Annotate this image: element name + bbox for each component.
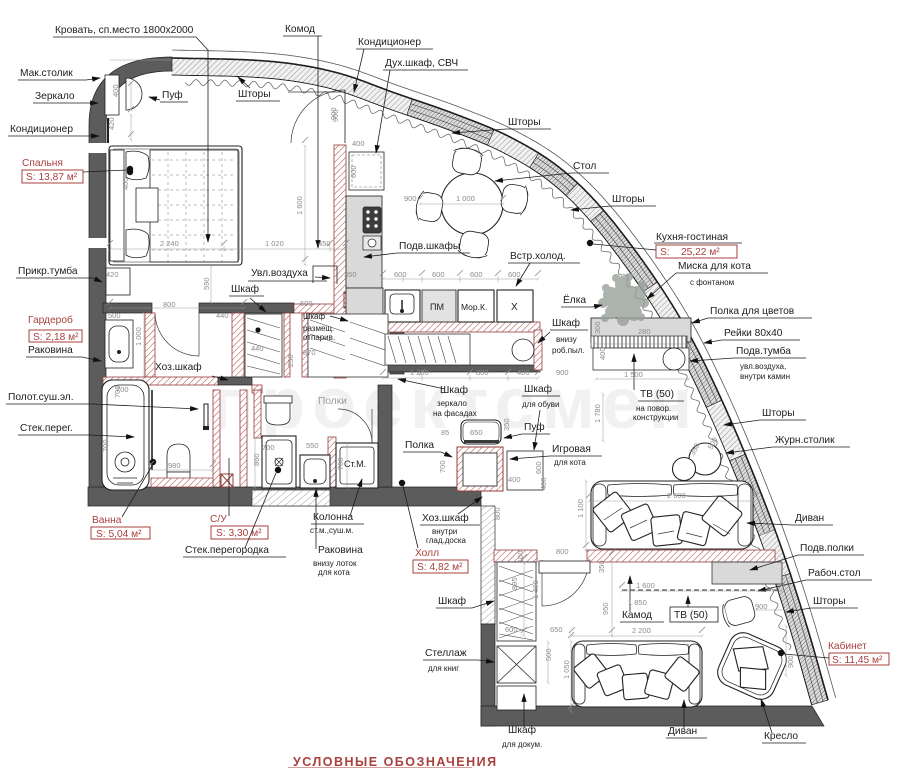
svg-text:85: 85 [441, 428, 449, 437]
svg-text:350: 350 [344, 270, 357, 279]
svg-text:внутри: внутри [432, 527, 457, 536]
svg-text:ст.м.,суш.м.: ст.м.,суш.м. [310, 526, 353, 535]
svg-text:Рабоч.стол: Рабоч.стол [808, 567, 861, 579]
svg-text:Шкаф: Шкаф [438, 595, 466, 607]
svg-text:900: 900 [786, 655, 795, 668]
svg-text:800: 800 [493, 507, 502, 520]
svg-text:1 780: 1 780 [593, 404, 602, 423]
svg-text:Ёлка: Ёлка [563, 294, 586, 306]
svg-text:870: 870 [303, 348, 316, 357]
svg-text:Шкаф: Шкаф [552, 317, 580, 329]
svg-text:ТВ (50): ТВ (50) [640, 389, 674, 400]
svg-text:700: 700 [101, 439, 110, 452]
svg-text:Рейки 80х40: Рейки 80х40 [724, 328, 783, 339]
svg-text:S: 4,82 м²: S: 4,82 м² [417, 562, 463, 573]
svg-text:800: 800 [556, 547, 569, 556]
svg-text:900: 900 [755, 602, 768, 611]
svg-text:600: 600 [508, 270, 521, 279]
svg-text:100: 100 [516, 550, 525, 563]
svg-text:700: 700 [262, 443, 275, 452]
svg-text:1 500: 1 500 [624, 370, 643, 379]
svg-text:Колонна: Колонна [313, 512, 353, 523]
svg-text:550: 550 [306, 441, 319, 450]
svg-text:S: 5,04 м²: S: 5,04 м² [96, 529, 142, 540]
svg-text:600: 600 [349, 165, 358, 178]
svg-text:Хоз.шкаф: Хоз.шкаф [422, 512, 469, 524]
svg-text:Пуф: Пуф [162, 89, 183, 101]
svg-text:450: 450 [318, 239, 331, 248]
svg-text:600: 600 [394, 270, 407, 279]
svg-text:400: 400 [598, 347, 607, 360]
svg-text:ТВ (50): ТВ (50) [674, 610, 708, 621]
svg-text:Шкаф: Шкаф [524, 383, 552, 395]
svg-text:1 000: 1 000 [456, 194, 475, 203]
svg-text:Мор.К.: Мор.К. [461, 302, 487, 312]
svg-text:900: 900 [556, 368, 569, 377]
svg-text:895: 895 [510, 577, 519, 590]
svg-text:350: 350 [597, 560, 606, 573]
svg-text:980: 980 [168, 461, 181, 470]
svg-text:Кухня-гостиная: Кухня-гостиная [656, 232, 728, 243]
svg-text:700: 700 [438, 460, 447, 473]
svg-text:Прикр.тумба: Прикр.тумба [18, 265, 78, 277]
svg-text:600: 600 [534, 461, 543, 474]
svg-text:2 600: 2 600 [667, 491, 686, 500]
svg-text:Пуф: Пуф [524, 421, 545, 433]
svg-text:900: 900 [404, 194, 417, 203]
svg-text:Диван: Диван [795, 513, 824, 524]
svg-text:S: 11,45 м²: S: 11,45 м² [832, 655, 883, 666]
svg-text:400: 400 [508, 475, 521, 484]
svg-text:для обуви: для обуви [522, 400, 559, 409]
svg-text:S: 3,30 м²: S: 3,30 м² [216, 528, 262, 539]
svg-text:S: 13,87 м²: S: 13,87 м² [26, 172, 78, 183]
svg-text:600: 600 [300, 299, 313, 308]
svg-text:Подв.полки: Подв.полки [800, 543, 854, 554]
svg-text:350: 350 [502, 418, 511, 431]
svg-text:С/У: С/У [210, 514, 227, 525]
svg-text:Шторы: Шторы [612, 194, 645, 205]
svg-text:400: 400 [517, 368, 530, 377]
svg-text:Полот.суш.эл.: Полот.суш.эл. [8, 392, 74, 403]
svg-text:Стеллаж: Стеллаж [425, 648, 467, 659]
svg-text:1 600: 1 600 [636, 581, 655, 590]
svg-text:для кота: для кота [318, 568, 350, 577]
svg-text:2 240: 2 240 [160, 239, 179, 248]
svg-text:на фасадах: на фасадах [433, 409, 477, 418]
svg-text:2 200: 2 200 [632, 626, 651, 635]
svg-text:400: 400 [539, 477, 548, 490]
svg-text:ПМ: ПМ [430, 302, 444, 312]
svg-text:900: 900 [329, 107, 338, 120]
svg-text:отпарив.: отпарив. [303, 333, 335, 342]
svg-text:Комод: Комод [285, 24, 315, 35]
svg-text:конструкции: конструкции [633, 413, 679, 422]
svg-text:Холл: Холл [415, 548, 439, 559]
svg-text:Камод: Камод [622, 610, 652, 621]
svg-text:увл.воздуха,: увл.воздуха, [740, 362, 786, 371]
svg-text:на повор.: на повор. [636, 404, 671, 413]
svg-text:Подв.шкафы: Подв.шкафы [399, 240, 460, 252]
svg-text:Кабинет: Кабинет [828, 640, 867, 652]
svg-text:500: 500 [544, 648, 553, 661]
svg-text:Стек.перег.: Стек.перег. [20, 423, 73, 434]
svg-text:Раковина: Раковина [318, 545, 363, 556]
svg-text:700: 700 [116, 385, 129, 394]
svg-text:Полки: Полки [318, 396, 347, 407]
svg-text:600: 600 [505, 625, 518, 634]
svg-text:300: 300 [593, 321, 602, 334]
svg-text:Кондиционер: Кондиционер [10, 124, 73, 135]
svg-text:860: 860 [252, 453, 261, 466]
svg-text:Гардероб: Гардероб [28, 314, 73, 326]
svg-text:280: 280 [638, 327, 651, 336]
svg-text:420: 420 [107, 117, 116, 130]
svg-text:Шкаф: Шкаф [303, 312, 325, 321]
svg-text:Раковина: Раковина [28, 345, 73, 356]
svg-text:Кресло: Кресло [764, 731, 798, 742]
svg-text:1 050: 1 050 [562, 660, 571, 679]
svg-text:Кровать, сп.место 1800х2000: Кровать, сп.место 1800х2000 [55, 25, 194, 36]
svg-text:внутри камин: внутри камин [740, 372, 790, 381]
svg-text:Шторы: Шторы [813, 596, 846, 607]
svg-text:глад.доска: глад.доска [426, 536, 467, 545]
svg-text:440: 440 [251, 344, 264, 353]
svg-text:Зеркало: Зеркало [35, 91, 75, 102]
svg-text:внизу: внизу [556, 335, 577, 344]
svg-text:Шторы: Шторы [238, 89, 271, 100]
svg-text:Стол: Стол [573, 161, 596, 172]
svg-text:1 000: 1 000 [134, 327, 143, 346]
svg-text:размещ.: размещ. [303, 324, 334, 333]
svg-text:1 200: 1 200 [410, 368, 429, 377]
svg-text:700: 700 [336, 457, 345, 470]
svg-text:УСЛОВНЫЕ ОБОЗНАЧЕНИЯ: УСЛОВНЫЕ ОБОЗНАЧЕНИЯ [293, 755, 498, 768]
svg-text:Кондиционер: Кондиционер [358, 37, 421, 48]
svg-text:Дух.шкаф, СВЧ: Дух.шкаф, СВЧ [385, 57, 458, 69]
svg-text:1 400: 1 400 [531, 580, 540, 599]
svg-text:Полка для цветов: Полка для цветов [710, 306, 794, 317]
svg-text:Мак.столик: Мак.столик [20, 68, 73, 79]
svg-text:1 020: 1 020 [265, 239, 284, 248]
svg-text:Х: Х [511, 302, 518, 313]
svg-text:400: 400 [121, 177, 130, 190]
svg-text:Полка: Полка [405, 440, 434, 451]
svg-text:250: 250 [286, 354, 295, 367]
svg-text:500: 500 [108, 311, 121, 320]
svg-text:600: 600 [470, 270, 483, 279]
svg-text:зеркало: зеркало [437, 399, 467, 408]
svg-text:Шкаф: Шкаф [508, 724, 536, 736]
svg-text:с фонтаном: с фонтаном [690, 278, 734, 287]
svg-text:Спальня: Спальня [22, 158, 63, 169]
svg-text:Хоз.шкаф: Хоз.шкаф [155, 361, 202, 373]
svg-text:800: 800 [476, 368, 489, 377]
svg-text:Шторы: Шторы [762, 408, 795, 419]
svg-text:внизу лоток: внизу лоток [313, 559, 357, 568]
svg-text:S: 2,18 м²: S: 2,18 м² [33, 332, 79, 343]
svg-text:590: 590 [202, 277, 211, 290]
svg-text:1 600: 1 600 [295, 196, 304, 215]
svg-text:800: 800 [163, 300, 176, 309]
svg-text:Миска для кота: Миска для кота [678, 261, 751, 272]
svg-text:Увл.воздуха: Увл.воздуха [251, 268, 308, 279]
svg-text:440: 440 [216, 311, 229, 320]
svg-text:420: 420 [106, 270, 119, 279]
svg-text:950: 950 [601, 602, 610, 615]
svg-text:400: 400 [111, 84, 120, 97]
svg-text:S: 25,22 м²: S: 25,22 м² [660, 247, 720, 258]
svg-text:Подв.тумба: Подв.тумба [736, 345, 791, 357]
svg-text:для книг: для книг [428, 664, 459, 673]
svg-text:Ванна: Ванна [92, 515, 122, 526]
svg-text:1 850: 1 850 [628, 598, 647, 607]
svg-text:400: 400 [352, 139, 365, 148]
svg-text:Стек.перегородка: Стек.перегородка [185, 545, 269, 556]
svg-text:Журн.столик: Журн.столик [775, 435, 835, 446]
svg-text:для докум.: для докум. [502, 740, 542, 749]
svg-text:Ст.М.: Ст.М. [344, 459, 366, 469]
svg-text:роб.пыл.: роб.пыл. [552, 346, 585, 355]
svg-text:для кота: для кота [554, 458, 586, 467]
svg-text:Шторы: Шторы [508, 117, 541, 128]
svg-text:Шкаф: Шкаф [231, 283, 259, 295]
svg-text:600: 600 [432, 270, 445, 279]
svg-text:Диван: Диван [668, 726, 697, 737]
svg-text:1 100: 1 100 [576, 499, 585, 518]
svg-text:Встр.холод.: Встр.холод. [510, 251, 566, 262]
svg-text:Шкаф: Шкаф [440, 384, 468, 396]
svg-text:650: 650 [550, 625, 563, 634]
svg-text:Игровая: Игровая [552, 444, 591, 455]
svg-text:650: 650 [470, 428, 483, 437]
